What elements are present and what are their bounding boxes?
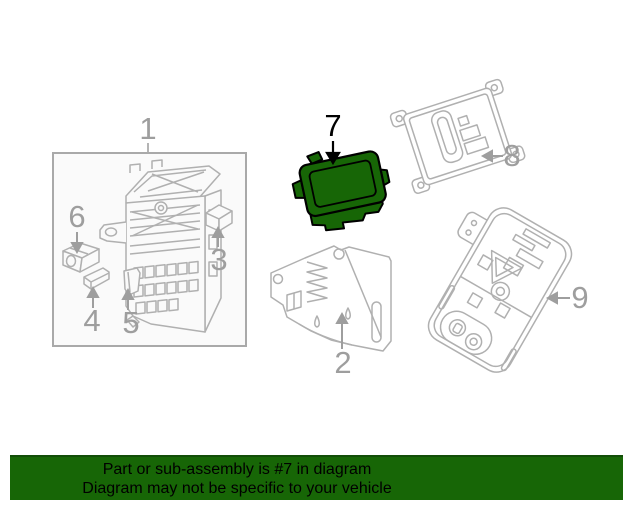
highlight-banner: Part or sub-assembly is #7 in diagram Di… [10,455,623,500]
part-label-6: 6 [55,202,99,232]
parts-diagram-line-art [0,0,640,512]
banner-line-1: Part or sub-assembly is #7 in diagram [10,460,464,479]
part-label-9: 9 [558,283,602,313]
part-label-3: 3 [197,245,241,275]
parts-diagram: 1 2 3 4 5 6 7 8 9 Part or sub-assembly i… [0,0,640,512]
part-label-5: 5 [109,308,153,338]
part-label-4: 4 [70,306,114,336]
part-label-7-highlighted: 7 [311,111,355,141]
highlight-banner-text: Part or sub-assembly is #7 in diagram Di… [10,460,464,498]
part-8-control-module-drawing [389,79,525,195]
part-label-8: 8 [490,141,534,171]
banner-line-2: Diagram may not be specific to your vehi… [10,479,464,498]
part-2-bracket-drawing [271,246,391,351]
part-label-2: 2 [321,348,365,378]
part-9-bracket-panel-drawing [405,192,577,378]
part-label-1: 1 [126,114,170,144]
part-7-highlighted-module-drawing [287,139,397,237]
